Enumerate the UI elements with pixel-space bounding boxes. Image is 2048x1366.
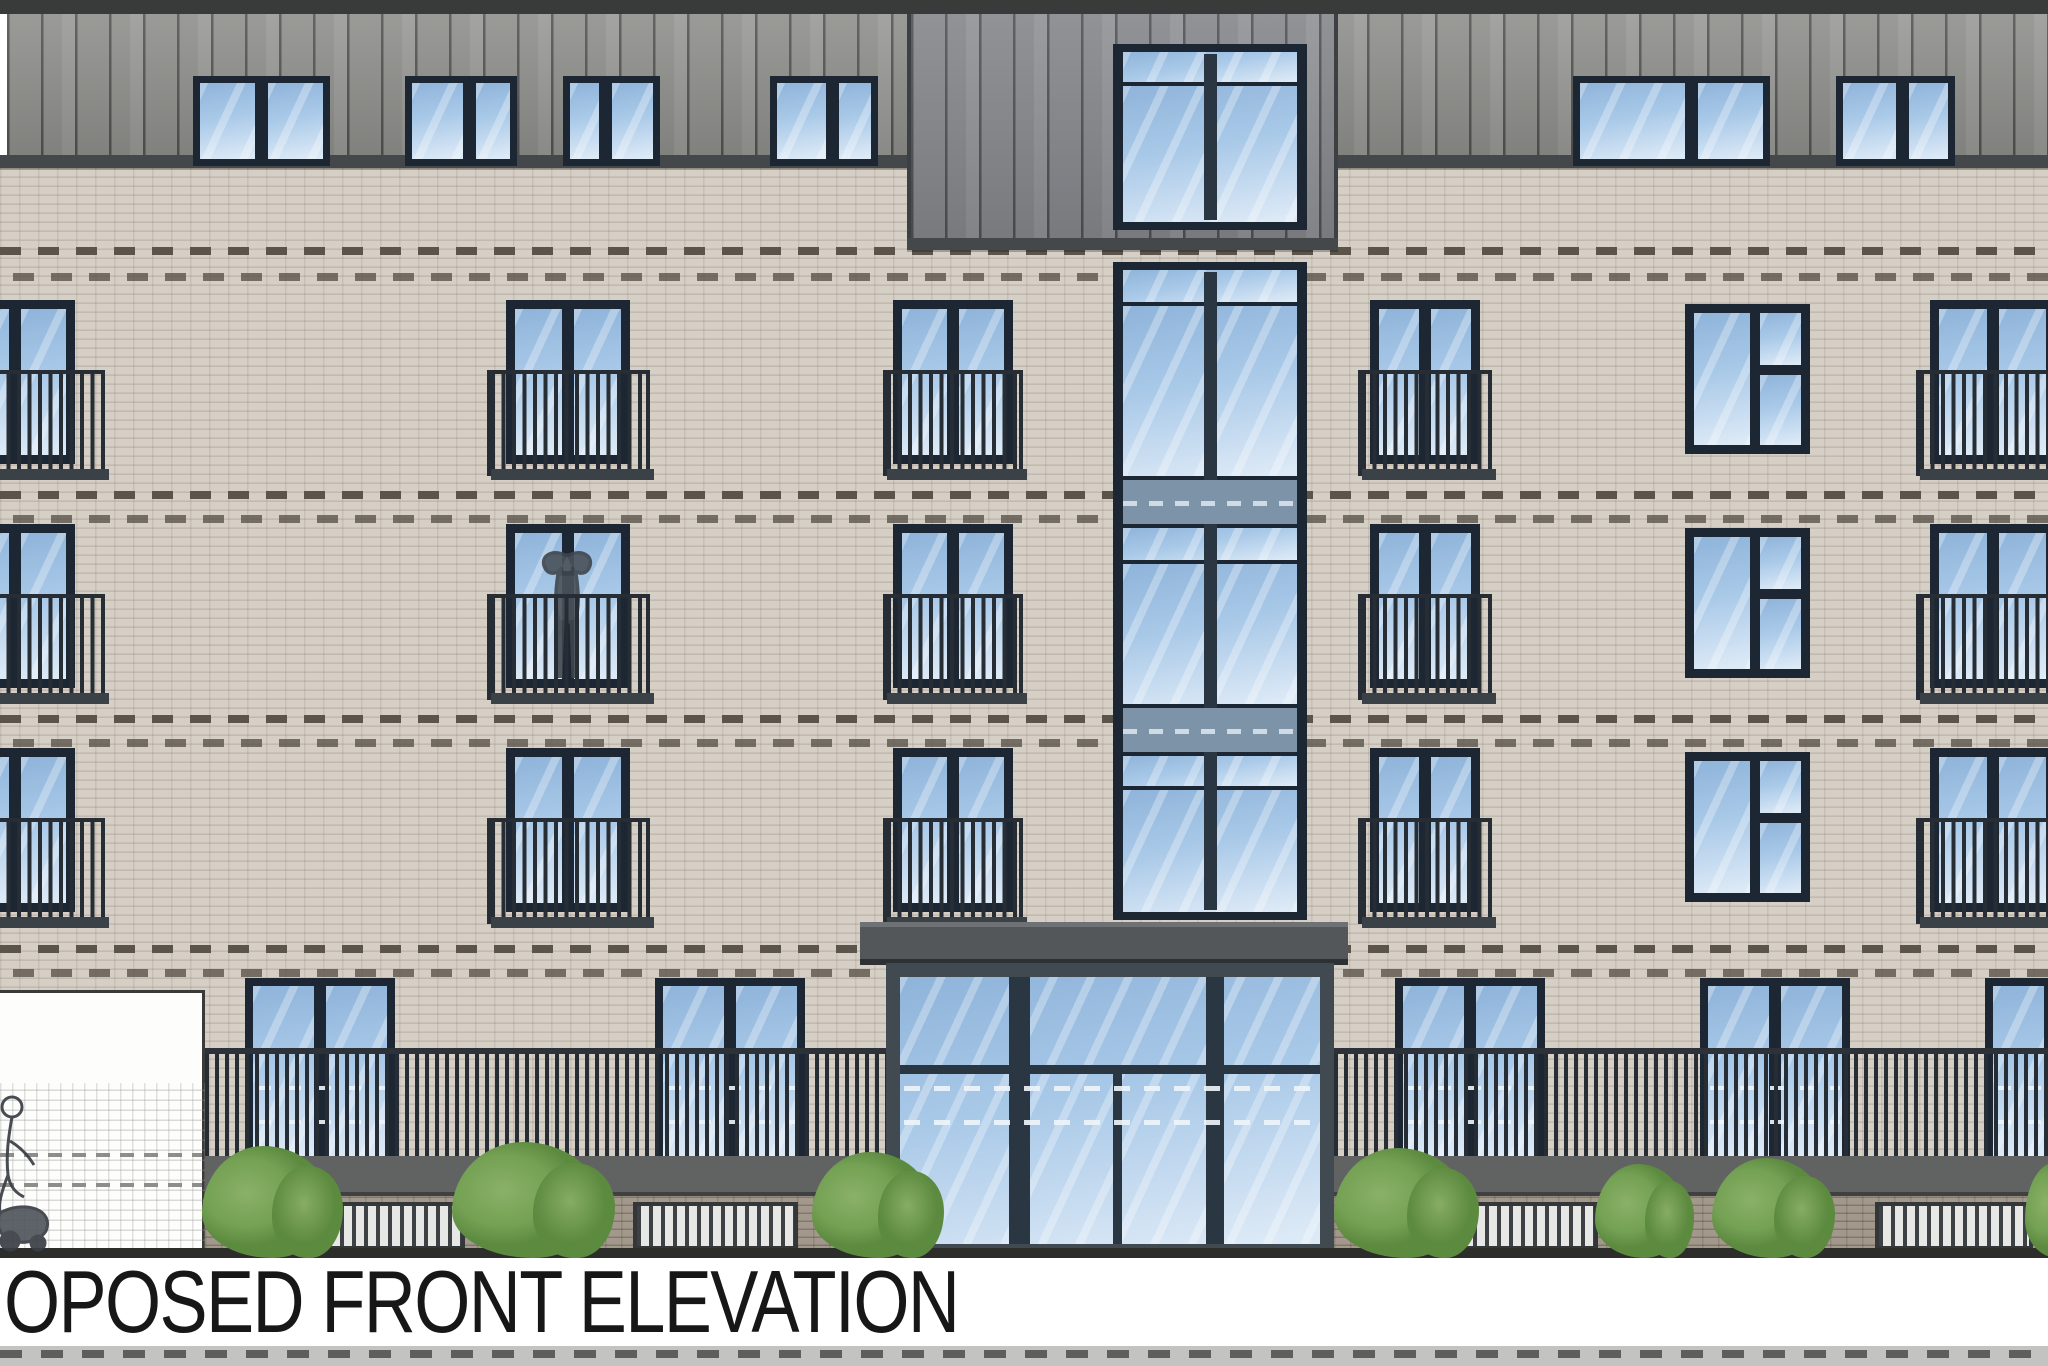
entrance-mullion: [1206, 977, 1224, 1244]
window-pane: [777, 83, 826, 159]
window-pane: [1909, 83, 1948, 159]
window-pane: [1760, 375, 1801, 445]
juliet-balcony-sill: [1920, 917, 2048, 928]
juliet-balcony-railing: [1916, 594, 2048, 700]
juliet-balcony-sill: [887, 469, 1027, 480]
juliet-balcony-sill: [491, 917, 654, 928]
ground-railing-bars: [1334, 1054, 2048, 1156]
juliet-balcony-railing: [883, 818, 1023, 924]
entrance-glazed-screen: [886, 963, 1334, 1258]
window-pane: [1580, 83, 1685, 159]
juliet-balcony-sill: [491, 469, 654, 480]
pavement-fence: [1875, 1202, 2033, 1250]
stair-strip-upper-window: [1113, 44, 1307, 230]
brick-accent-band: [0, 273, 2048, 281]
top-floor-window: [563, 76, 660, 166]
window-pane: [1694, 537, 1750, 669]
window-pane: [200, 83, 255, 159]
window-pane: [1760, 537, 1801, 589]
stair-strip-glazing: [1113, 262, 1307, 920]
brick-accent-band: [0, 715, 2048, 723]
juliet-balcony-railing: [883, 594, 1023, 700]
brick-accent-band: [0, 739, 2048, 747]
window-pane: [570, 83, 599, 159]
entrance-transom: [900, 1065, 1320, 1074]
juliet-balcony-railing: [883, 370, 1023, 476]
bush: [812, 1152, 932, 1258]
juliet-balcony-railing: [0, 594, 105, 700]
glass-reflection-dash: [904, 1086, 1316, 1091]
window-pane: [1760, 313, 1801, 365]
strip-spandrel: [1123, 708, 1297, 752]
stair-window: [1685, 528, 1810, 678]
window-pane: [1698, 83, 1763, 159]
bush: [1712, 1158, 1824, 1258]
juliet-balcony-railing: [487, 818, 650, 924]
juliet-balcony-railing: [1916, 370, 2048, 476]
juliet-balcony-sill: [1920, 469, 2048, 480]
window-pane: [412, 83, 463, 159]
window-pane: [268, 83, 323, 159]
bush: [1595, 1164, 1685, 1258]
stair-window: [1685, 304, 1810, 454]
window-pane: [1694, 761, 1750, 893]
juliet-balcony-sill: [491, 693, 654, 704]
entrance-canopy: [860, 922, 1348, 965]
window-pane: [1760, 599, 1801, 669]
top-floor-window: [405, 76, 517, 166]
top-floor-window: [1836, 76, 1955, 166]
juliet-balcony-sill: [1362, 693, 1496, 704]
stair-window: [1685, 752, 1810, 902]
juliet-balcony-railing: [1916, 818, 2048, 924]
juliet-balcony-sill: [1362, 917, 1496, 928]
juliet-balcony-sill: [0, 693, 109, 704]
window-pane: [612, 83, 653, 159]
juliet-balcony-railing: [487, 370, 650, 476]
juliet-balcony-railing: [1358, 594, 1492, 700]
entrance-door-stile: [1113, 1065, 1122, 1244]
drawing-margin: [0, 0, 7, 168]
juliet-balcony-sill: [1362, 469, 1496, 480]
sheet-bottom-band: [0, 1346, 2048, 1366]
strip-spandrel: [1123, 480, 1297, 524]
cladding-trim: [907, 238, 1338, 250]
window-pane: [1694, 313, 1750, 445]
juliet-balcony-sill: [0, 917, 109, 928]
strip-mullion: [1204, 272, 1217, 910]
top-floor-window: [193, 76, 330, 166]
juliet-balcony-railing: [1358, 818, 1492, 924]
juliet-balcony-sill: [1920, 693, 2048, 704]
top-floor-window: [770, 76, 878, 166]
title-strip: OPOSED FRONT ELEVATION: [0, 1258, 2048, 1346]
window-pane: [1843, 83, 1896, 159]
strip-mullion: [1204, 54, 1217, 220]
juliet-balcony-railing: [0, 370, 105, 476]
brick-accent-band: [0, 515, 2048, 523]
window-pane: [1760, 823, 1801, 893]
brick-accent-band: [0, 491, 2048, 499]
bush: [1334, 1148, 1466, 1258]
pavement-fence: [633, 1202, 798, 1250]
juliet-balcony-railing: [1358, 370, 1492, 476]
bush: [202, 1146, 330, 1258]
entrance-mullion: [1009, 977, 1030, 1244]
window-pane: [839, 83, 871, 159]
juliet-balcony-railing: [0, 818, 105, 924]
entrance-glass: [900, 977, 1320, 1244]
glass-reflection-dash: [904, 1120, 1316, 1125]
window-pane: [476, 83, 510, 159]
juliet-balcony-railing: [487, 594, 650, 700]
juliet-balcony-sill: [887, 693, 1027, 704]
roof-line: [0, 0, 2048, 14]
ground-railing-bars: [205, 1054, 886, 1156]
drawing-title: OPOSED FRONT ELEVATION: [4, 1258, 958, 1346]
window-pane: [1760, 761, 1801, 813]
top-floor-window: [1573, 76, 1770, 166]
juliet-balcony-sill: [0, 469, 109, 480]
person-street-sketch: [0, 1095, 56, 1255]
building-facade: OPOSED FRONT ELEVATION: [0, 0, 2048, 1366]
elevation-drawing: OPOSED FRONT ELEVATION: [0, 0, 2048, 1366]
bush: [452, 1142, 600, 1258]
